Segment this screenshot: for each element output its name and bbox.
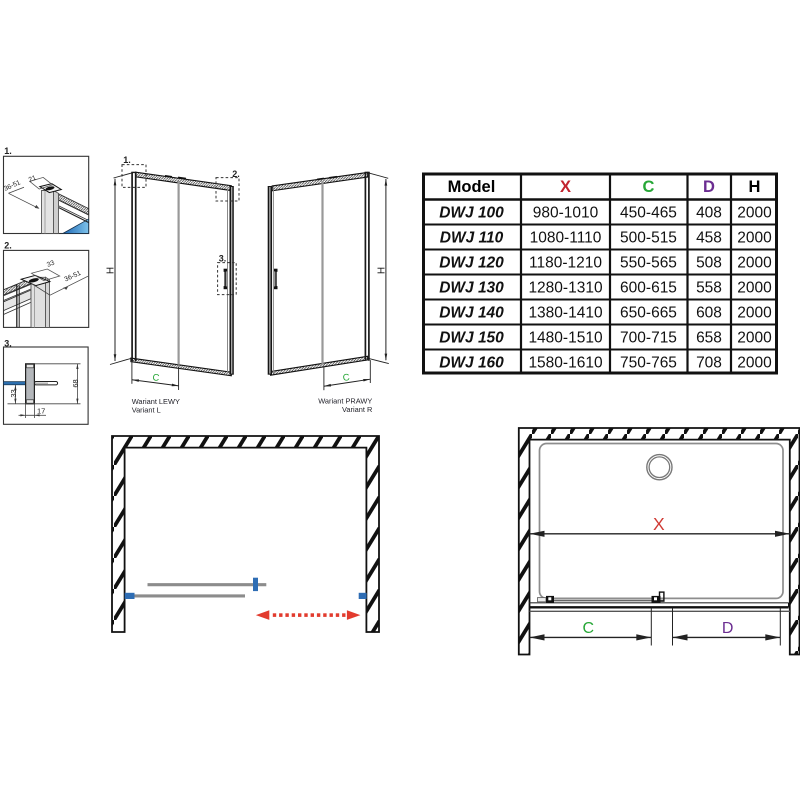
- svg-text:3.: 3.: [219, 254, 227, 264]
- svg-text:2000: 2000: [737, 330, 772, 347]
- svg-text:1480-1510: 1480-1510: [528, 330, 603, 347]
- svg-text:500-515: 500-515: [620, 230, 677, 247]
- svg-text:2000: 2000: [737, 230, 772, 247]
- svg-text:2000: 2000: [737, 205, 772, 222]
- svg-text:DWJ 160: DWJ 160: [439, 355, 504, 372]
- svg-text:408: 408: [696, 205, 722, 222]
- svg-text:DWJ 130: DWJ 130: [439, 280, 504, 297]
- svg-text:33: 33: [9, 389, 18, 397]
- svg-text:2.: 2.: [4, 241, 12, 251]
- svg-text:600-615: 600-615: [620, 280, 677, 297]
- svg-text:Variant L: Variant L: [132, 405, 161, 414]
- svg-text:DWJ 110: DWJ 110: [440, 230, 504, 247]
- svg-text:D: D: [703, 178, 715, 196]
- svg-text:68: 68: [71, 379, 80, 387]
- svg-text:980-1010: 980-1010: [533, 205, 599, 222]
- svg-text:2.: 2.: [232, 169, 240, 179]
- svg-text:550-565: 550-565: [620, 255, 677, 272]
- svg-text:508: 508: [696, 255, 722, 272]
- svg-text:1580-1610: 1580-1610: [528, 355, 603, 372]
- svg-text:DWJ 120: DWJ 120: [439, 255, 504, 272]
- svg-text:450-465: 450-465: [620, 205, 677, 222]
- svg-text:H: H: [376, 267, 387, 274]
- svg-text:DWJ 100: DWJ 100: [439, 205, 504, 222]
- svg-text:X: X: [560, 178, 571, 196]
- svg-text:608: 608: [696, 305, 722, 322]
- svg-text:H: H: [749, 178, 761, 196]
- svg-text:1.: 1.: [4, 146, 12, 156]
- svg-text:2000: 2000: [737, 305, 772, 322]
- svg-text:2000: 2000: [737, 280, 772, 297]
- svg-text:658: 658: [696, 330, 722, 347]
- svg-text:1380-1410: 1380-1410: [528, 305, 603, 322]
- svg-text:1.: 1.: [123, 155, 131, 165]
- svg-text:1280-1310: 1280-1310: [528, 280, 603, 297]
- svg-text:750-765: 750-765: [620, 355, 677, 372]
- svg-text:650-665: 650-665: [620, 305, 677, 322]
- svg-text:17: 17: [37, 406, 45, 415]
- svg-text:X: X: [653, 514, 665, 534]
- svg-text:2000: 2000: [737, 255, 772, 272]
- svg-text:Model: Model: [448, 178, 496, 196]
- svg-text:DWJ 140: DWJ 140: [439, 305, 504, 322]
- svg-text:D: D: [722, 620, 734, 637]
- svg-text:2000: 2000: [737, 355, 772, 372]
- svg-text:700-715: 700-715: [620, 330, 677, 347]
- svg-text:C: C: [643, 178, 655, 196]
- svg-text:H: H: [106, 267, 117, 274]
- svg-text:708: 708: [696, 355, 722, 372]
- svg-text:1080-1110: 1080-1110: [530, 230, 602, 247]
- svg-text:DWJ 150: DWJ 150: [439, 330, 504, 347]
- svg-text:1180-1210: 1180-1210: [529, 255, 602, 272]
- svg-text:C: C: [583, 620, 595, 637]
- svg-text:458: 458: [696, 230, 722, 247]
- svg-text:558: 558: [696, 280, 722, 297]
- svg-text:Variant R: Variant R: [342, 405, 372, 414]
